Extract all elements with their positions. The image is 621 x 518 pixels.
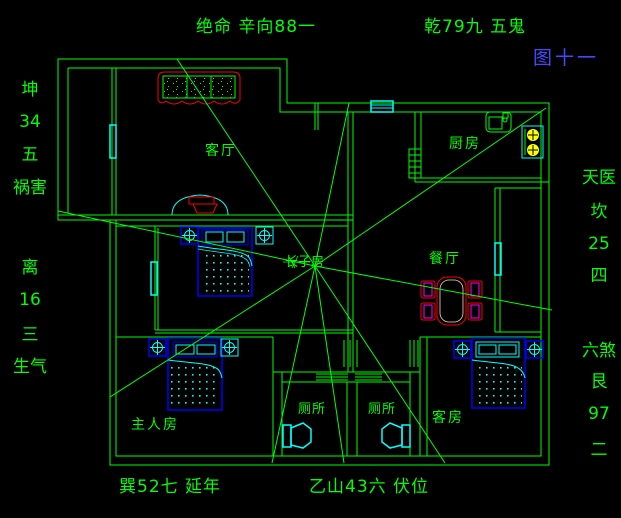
annotation-right-liusha: 六煞: [576, 343, 621, 360]
ceiling-lamp-icon: [256, 227, 273, 244]
annotation-right-97: 97: [576, 406, 621, 423]
room-label-toilet-right: 厕所: [368, 403, 396, 416]
ceiling-lamp-icon: [181, 227, 198, 244]
annotation-left-34: 34: [6, 114, 54, 131]
room-label-guest: 客房: [432, 411, 464, 425]
room-label-dining: 餐厅: [429, 252, 461, 266]
room-label-master: 主人房: [131, 418, 179, 432]
ceiling-lamp-icon: [221, 339, 238, 356]
window-bedroom-west: [151, 262, 157, 295]
annotation-left-san: 三: [6, 327, 54, 344]
annotation-left-wu: 五: [6, 147, 54, 164]
window-living-west: [110, 125, 116, 158]
dining-set: [421, 277, 482, 325]
annotation-top-right: 乾79九 五鬼: [424, 19, 526, 36]
annotation-top-left: 绝命 辛向88一: [196, 19, 316, 36]
sofa: [158, 72, 240, 104]
room-label-toilet-left: 厕所: [298, 403, 326, 416]
bed-eldest-son: [198, 228, 252, 296]
ceiling-lamp-icon: [149, 339, 166, 356]
room-label-eldest-son: 长子房: [285, 256, 324, 269]
ceiling-lamp-icon: [526, 341, 543, 358]
annotation-bottom-right: 乙山43六 伏位: [309, 479, 429, 496]
bed-guest: [472, 338, 525, 408]
stove-icon: [522, 126, 543, 158]
floorplan-canvas: 绝命 辛向88一 乾79九 五鬼 图十一 坤 34 五 祸害 离 16 三 生气…: [0, 0, 621, 518]
annotation-left-16: 16: [6, 292, 54, 309]
kitchen-sink-icon: [486, 112, 511, 132]
annotation-left-shengqi: 生气: [6, 359, 54, 376]
annotation-bottom-left: 巽52七 延年: [119, 479, 221, 496]
annotation-left-kun: 坤: [6, 82, 54, 99]
ceiling-lamp-icon: [454, 341, 471, 358]
annotation-right-kan: 坎: [576, 204, 621, 221]
dining-chairs: [421, 281, 482, 320]
annotation-left-huohai: 祸害: [6, 180, 54, 197]
bed-master: [168, 338, 222, 410]
figure-number: 图十一: [533, 49, 599, 68]
annotation-left-li: 离: [6, 260, 54, 277]
annotation-right-tianyi: 天医: [576, 170, 621, 187]
toilet-icon: [283, 423, 311, 448]
tv-stand: [172, 195, 228, 215]
toilet-icon: [382, 423, 410, 448]
annotation-right-er: 二: [576, 442, 621, 459]
room-label-living: 客厅: [205, 144, 237, 158]
tv-icon: [189, 197, 214, 204]
annotation-right-25: 25: [576, 236, 621, 253]
room-label-kitchen: 厨房: [449, 137, 481, 151]
annotation-right-gen: 艮: [576, 374, 621, 391]
annotation-right-si: 四: [576, 268, 621, 285]
